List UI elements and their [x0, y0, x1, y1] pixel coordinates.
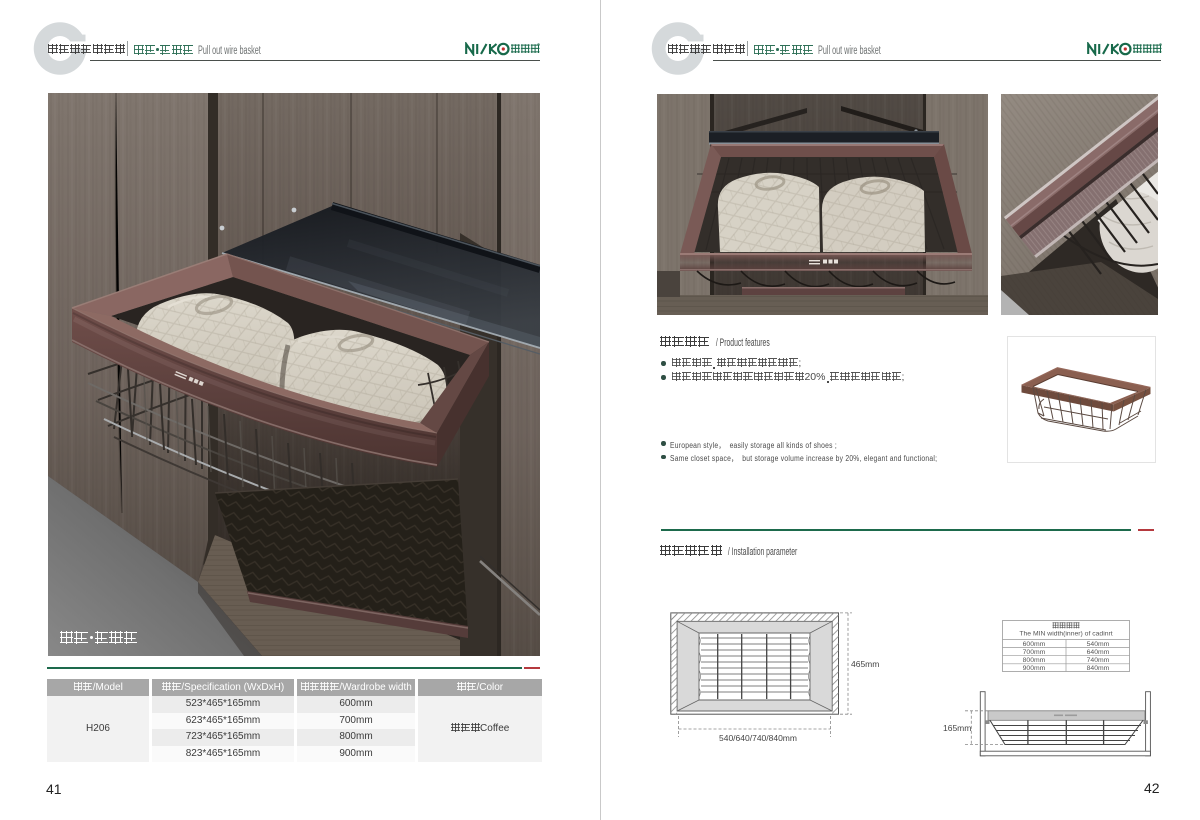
- svg-text:540/640/740/840mm: 540/640/740/840mm: [719, 733, 797, 743]
- svg-text:800mm: 800mm: [1023, 657, 1046, 664]
- svg-text:165mm: 165mm: [943, 723, 971, 733]
- svg-text:900mm: 900mm: [1023, 665, 1046, 672]
- svg-text:The MIN width(inner) of cadinr: The MIN width(inner) of cadinrt: [1019, 631, 1112, 638]
- svg-text:640mm: 640mm: [1087, 649, 1110, 656]
- svg-text:465mm: 465mm: [851, 659, 879, 669]
- svg-text:540mm: 540mm: [1087, 641, 1110, 648]
- svg-text:700mm: 700mm: [1023, 649, 1046, 656]
- svg-text:840mm: 840mm: [1087, 665, 1110, 672]
- svg-text:600mm: 600mm: [1023, 641, 1046, 648]
- svg-text:740mm: 740mm: [1087, 657, 1110, 664]
